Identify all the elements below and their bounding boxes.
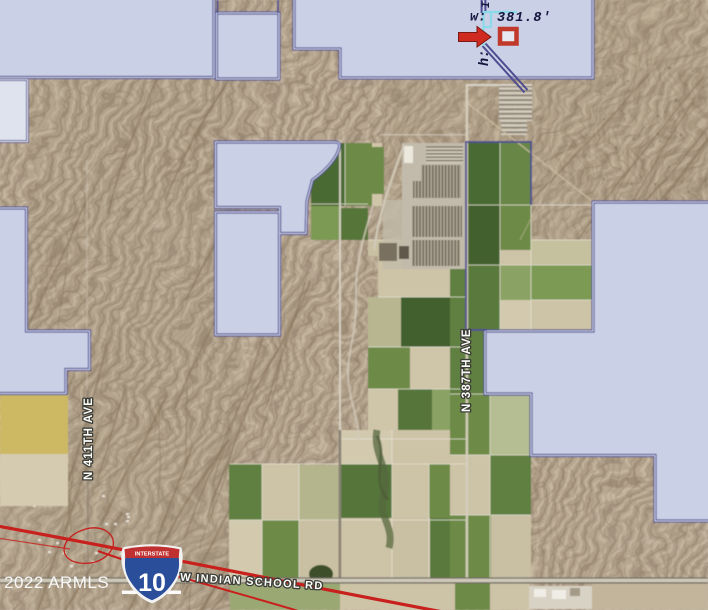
svg-text:10: 10 [138, 569, 166, 597]
svg-text:INTERSTATE: INTERSTATE [135, 552, 170, 558]
svg-text:h:: h: [478, 50, 493, 66]
svg-text:381.8': 381.8' [497, 11, 552, 26]
svg-text:w:: w: [470, 11, 486, 26]
svg-text:I.: I. [481, 0, 493, 8]
svg-text:N 411TH AVE: N 411TH AVE [83, 397, 95, 480]
svg-text:N 387TH AVE: N 387TH AVE [461, 328, 473, 412]
svg-text:2022 ARMLS: 2022 ARMLS [4, 573, 109, 592]
